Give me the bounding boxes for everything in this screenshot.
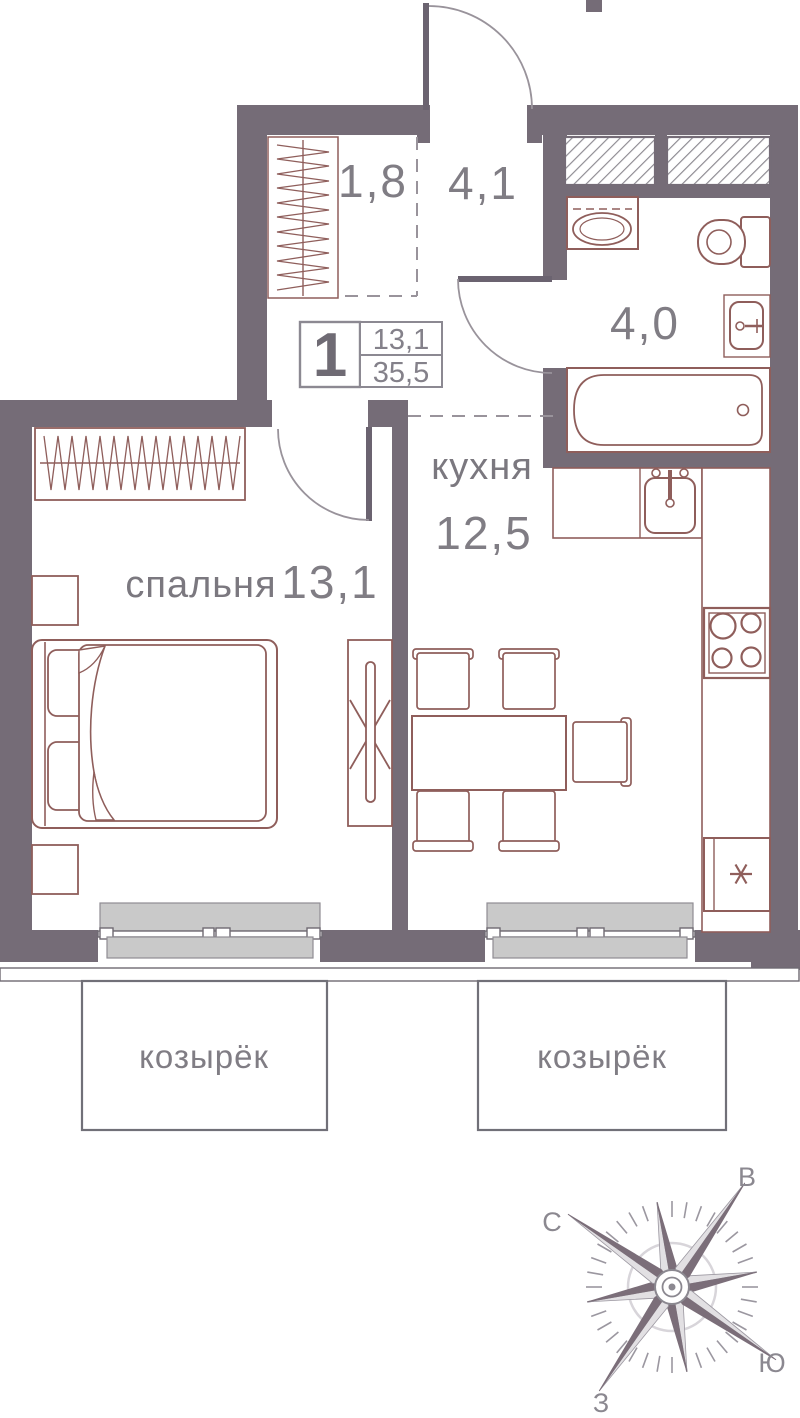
bathroom-area-label: 4,0 (610, 297, 680, 349)
wall-top-left (237, 105, 427, 135)
canopies: козырёк козырёк (82, 981, 726, 1130)
wall-bedroom-top (0, 400, 272, 427)
wall-bedroom-kitchen (392, 400, 408, 932)
wall-bath-left-upper (543, 105, 567, 280)
info-total-area: 35,5 (373, 357, 429, 389)
vent-shaft-icon (565, 137, 655, 185)
kitchen-area-label: 12,5 (435, 507, 533, 559)
bedroom-window (98, 903, 322, 958)
info-box: 1 13,1 35,5 (300, 321, 442, 390)
bedroom-door-leaf (366, 427, 372, 521)
entry-door-leaf (423, 3, 429, 110)
entry-jamb-right (527, 105, 542, 143)
compass-north-label: С (542, 1207, 562, 1237)
wardrobe-icon (35, 428, 245, 500)
kitchen-sink-icon (645, 469, 695, 533)
wall-right (770, 105, 798, 932)
toilet-icon (698, 217, 770, 267)
info-rooms-count: 1 (313, 321, 347, 390)
hall-area-label: 4,1 (448, 157, 518, 209)
bathtub-icon (567, 368, 770, 452)
bedroom-furniture (32, 428, 392, 894)
fridge-icon (704, 838, 770, 911)
kitchen-name-label: кухня (431, 446, 533, 488)
wall-left (0, 400, 32, 932)
canopy-left-label: козырёк (139, 1038, 269, 1075)
wall-stub-top (586, 0, 602, 12)
bedroom-door-arc (278, 429, 369, 520)
compass-south-label: Ю (758, 1348, 785, 1378)
stove-icon (704, 608, 770, 678)
washing-machine-icon (567, 197, 638, 249)
washbasin-icon (724, 295, 770, 357)
hall-closet-icon (268, 137, 338, 298)
entry-door-arc (429, 6, 532, 109)
compass-west-label: З (593, 1388, 609, 1418)
bedroom-name-label: спальня (125, 564, 276, 606)
closet-area-label: 1,8 (338, 155, 408, 207)
compass-hub-dot (669, 1284, 676, 1291)
wall-bottom-right-ext (751, 930, 800, 970)
compass-rose-icon: С В Ю З (542, 1162, 785, 1418)
tv-stand-icon (348, 640, 392, 826)
kitchen-window (485, 903, 695, 958)
dining-set (412, 649, 631, 851)
floor-plan: козырёк козырёк 1,8 4,1 4,0 кухня 12,5 с… (0, 0, 800, 1418)
vent-shafts (565, 137, 770, 185)
info-living-area: 13,1 (373, 324, 429, 356)
wall-bottom-2 (320, 930, 485, 962)
bedroom-area-label: 13,1 (281, 556, 379, 608)
wall-top-right (530, 105, 798, 135)
dining-table-icon (412, 716, 566, 790)
entry-jamb-left (417, 105, 430, 143)
vent-shaft-icon (667, 137, 770, 185)
canopy-right-label: козырёк (537, 1038, 667, 1075)
bathroom-door-arc (458, 279, 552, 373)
wall-hall-left (237, 105, 267, 407)
compass-east-label: В (738, 1162, 756, 1192)
bathroom-door-leaf (458, 276, 552, 282)
wall-bath-bottom (543, 452, 770, 468)
facade-ledge (0, 968, 799, 981)
blanket-icon (79, 645, 266, 821)
wall-bottom-1 (0, 930, 98, 962)
bed-icon (32, 640, 277, 828)
